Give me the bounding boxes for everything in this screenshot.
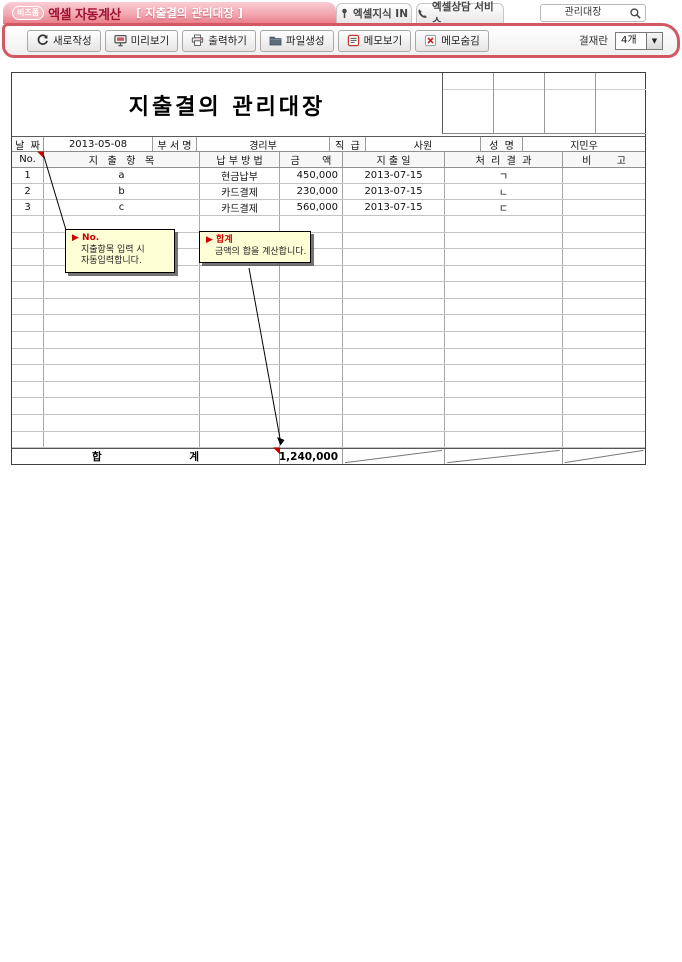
empty-cell[interactable] <box>563 415 645 431</box>
empty-cell[interactable] <box>343 216 445 232</box>
col-header-no: No. <box>12 152 44 167</box>
printer-icon <box>191 34 204 47</box>
header-bar: 비즈폼 엑셀 자동계산 [ 지출결의 관리대장 ] <box>3 2 336 24</box>
empty-cell[interactable] <box>343 299 445 315</box>
empty-cell[interactable] <box>343 398 445 414</box>
tab-label: 엑셀지식 IN <box>353 6 408 21</box>
empty-cell[interactable] <box>563 332 645 348</box>
empty-cell[interactable] <box>12 432 44 448</box>
button-label: 새로작성 <box>53 33 92 48</box>
empty-cell[interactable] <box>200 299 280 315</box>
empty-cell[interactable] <box>44 332 200 348</box>
print-button[interactable]: 출력하기 <box>182 30 256 52</box>
empty-row <box>12 398 645 415</box>
empty-cell[interactable] <box>200 398 280 414</box>
approval-columns-value: 4개 <box>616 33 646 49</box>
empty-row <box>12 415 645 432</box>
empty-cell[interactable] <box>12 282 44 298</box>
empty-cell[interactable] <box>44 398 200 414</box>
folder-icon <box>269 34 282 47</box>
cell-result[interactable]: ㄷ <box>445 200 563 215</box>
empty-cell[interactable] <box>563 432 645 448</box>
approval-col <box>494 73 545 133</box>
empty-cell[interactable] <box>200 282 280 298</box>
cell-date[interactable]: 2013-07-15 <box>343 200 445 215</box>
pin-icon <box>340 8 349 19</box>
approval-label-cell <box>545 73 595 90</box>
empty-cell[interactable] <box>343 233 445 249</box>
empty-cell[interactable] <box>445 249 563 265</box>
empty-cell[interactable] <box>445 332 563 348</box>
total-diagonal-cell <box>563 449 645 464</box>
empty-cell[interactable] <box>44 432 200 448</box>
cell-note[interactable] <box>563 200 645 215</box>
search-input[interactable]: 관리대장 <box>541 5 625 21</box>
empty-cell[interactable] <box>200 315 280 331</box>
cell-result[interactable]: ㄴ <box>445 184 563 199</box>
cell-amount[interactable]: 560,000 <box>280 200 343 215</box>
cell-no: 2 <box>12 184 44 199</box>
empty-cell[interactable] <box>280 365 343 381</box>
empty-cell[interactable] <box>44 349 200 365</box>
name-label: 성 명 <box>481 137 523 151</box>
title-area: 지출결의 관리대장 <box>12 73 442 136</box>
empty-cell[interactable] <box>445 266 563 282</box>
date-label: 날 짜 <box>12 137 44 151</box>
empty-cell[interactable] <box>445 349 563 365</box>
col-header-method: 납 부 방 법 <box>200 152 280 167</box>
col-header-result: 처 리 결 과 <box>445 152 563 167</box>
cell-result[interactable]: ㄱ <box>445 168 563 183</box>
empty-cell[interactable] <box>563 299 645 315</box>
app-window: 비즈폼 엑셀 자동계산 [ 지출결의 관리대장 ] 엑셀지식 IN 엑셀상담 서… <box>0 0 682 962</box>
empty-cell[interactable] <box>12 315 44 331</box>
cell-method[interactable]: 현금납부 <box>200 168 280 183</box>
empty-cell[interactable] <box>445 365 563 381</box>
empty-cell[interactable] <box>280 382 343 398</box>
button-label: 메모숨김 <box>441 33 480 48</box>
app-logo-title: 엑셀 자동계산 <box>48 4 121 23</box>
empty-row <box>12 382 645 399</box>
empty-cell[interactable] <box>280 266 343 282</box>
empty-cell[interactable] <box>563 349 645 365</box>
current-document-tag: [ 지출결의 관리대장 ] <box>136 5 243 21</box>
cell-note[interactable] <box>563 168 645 183</box>
toolbar: 새로작성 미리보기 출력하기 파일생성 메모보기 <box>2 23 680 58</box>
empty-cell[interactable] <box>445 315 563 331</box>
empty-cell[interactable] <box>200 349 280 365</box>
rank-value[interactable]: 사원 <box>366 137 481 151</box>
memo-text: 자동입력합니다. <box>72 256 169 268</box>
empty-row <box>12 349 645 366</box>
cell-method[interactable]: 카드결제 <box>200 200 280 215</box>
button-label: 파일생성 <box>286 33 325 48</box>
diagonal-line <box>445 449 562 464</box>
hide-memo-button[interactable]: 메모숨김 <box>415 30 489 52</box>
department-value[interactable]: 경리부 <box>197 137 330 151</box>
col-header-date: 지 출 일 <box>343 152 445 167</box>
empty-cell[interactable] <box>445 233 563 249</box>
button-label: 메모보기 <box>364 33 403 48</box>
preview-button[interactable]: 미리보기 <box>105 30 179 52</box>
memo-icon <box>347 34 360 47</box>
col-header-amount: 금 액 <box>280 152 343 167</box>
cell-note[interactable] <box>563 184 645 199</box>
empty-cell[interactable] <box>563 216 645 232</box>
diagonal-line <box>343 449 444 464</box>
cell-amount[interactable]: 450,000 <box>280 168 343 183</box>
empty-row <box>12 432 645 449</box>
button-label: 미리보기 <box>131 33 170 48</box>
empty-row <box>12 282 645 299</box>
memo-title: ▶ 합계 <box>206 235 305 247</box>
cell-item[interactable]: a <box>44 168 200 183</box>
empty-cell[interactable] <box>563 233 645 249</box>
empty-cell[interactable] <box>280 349 343 365</box>
cell-amount[interactable]: 230,000 <box>280 184 343 199</box>
table-row: 2 b 카드결제 230,000 2013-07-15 ㄴ <box>12 184 645 200</box>
empty-cell[interactable] <box>200 415 280 431</box>
total-row: 합 계 1,240,000 <box>12 448 645 464</box>
column-header-row: No. 지 출 항 목 납 부 방 법 금 액 지 출 일 처 리 결 과 비 … <box>12 152 645 168</box>
empty-cell[interactable] <box>44 282 200 298</box>
empty-cell[interactable] <box>445 299 563 315</box>
cell-item[interactable]: b <box>44 184 200 199</box>
approval-label-cell <box>596 73 646 90</box>
empty-cell[interactable] <box>563 315 645 331</box>
empty-cell[interactable] <box>280 299 343 315</box>
table-row: 1 a 현금납부 450,000 2013-07-15 ㄱ <box>12 168 645 184</box>
empty-cell[interactable] <box>343 332 445 348</box>
logo-badge: 비즈폼 <box>12 6 44 20</box>
empty-cell[interactable] <box>280 398 343 414</box>
page-title: 지출결의 관리대장 <box>129 89 326 121</box>
data-rows: 1 a 현금납부 450,000 2013-07-15 ㄱ 2 b 카드결제 2… <box>12 168 645 448</box>
empty-cell[interactable] <box>280 282 343 298</box>
empty-cell[interactable] <box>343 432 445 448</box>
empty-cell[interactable] <box>44 415 200 431</box>
empty-cell[interactable] <box>12 398 44 414</box>
memo-text: 지출항목 입력 시 <box>72 245 169 257</box>
empty-cell[interactable] <box>200 266 280 282</box>
empty-cell[interactable] <box>445 216 563 232</box>
cell-method[interactable]: 카드결제 <box>200 184 280 199</box>
button-label: 출력하기 <box>208 33 247 48</box>
show-memo-button[interactable]: 메모보기 <box>338 30 412 52</box>
approval-label-cell <box>443 73 493 90</box>
empty-cell[interactable] <box>200 432 280 448</box>
approval-grid <box>442 73 646 134</box>
cell-date[interactable]: 2013-07-15 <box>343 168 445 183</box>
empty-cell[interactable] <box>563 282 645 298</box>
empty-cell[interactable] <box>280 315 343 331</box>
empty-cell[interactable] <box>563 266 645 282</box>
empty-cell[interactable] <box>343 382 445 398</box>
empty-cell[interactable] <box>563 382 645 398</box>
empty-cell[interactable] <box>445 398 563 414</box>
empty-cell[interactable] <box>343 266 445 282</box>
empty-row <box>12 315 645 332</box>
empty-cell[interactable] <box>12 266 44 282</box>
diagonal-line <box>563 449 645 464</box>
total-label-cell: 합 계 <box>12 449 280 464</box>
refresh-icon <box>36 34 49 47</box>
empty-cell[interactable] <box>563 365 645 381</box>
cell-item[interactable]: c <box>44 200 200 215</box>
total-amount-cell: 1,240,000 <box>280 449 343 464</box>
memo-note-no[interactable]: ▶ No. 지출항목 입력 시 자동입력합니다. <box>65 229 175 273</box>
memo-title: ▶ No. <box>72 233 169 245</box>
approval-columns-select[interactable]: 4개 ▼ <box>615 32 663 50</box>
empty-cell[interactable] <box>12 415 44 431</box>
empty-cell[interactable] <box>12 249 44 265</box>
approval-sign-cell <box>443 90 493 133</box>
empty-cell[interactable] <box>12 299 44 315</box>
tab-excel-knowledge[interactable]: 엑셀지식 IN <box>336 3 412 23</box>
search-icon[interactable] <box>625 5 645 21</box>
empty-cell[interactable] <box>280 432 343 448</box>
rank-label: 직 급 <box>330 137 366 151</box>
col-header-note: 비 고 <box>563 152 645 167</box>
phone-icon <box>417 8 428 19</box>
memo-note-total[interactable]: ▶ 합계 금액의 합을 계산합니다. <box>199 231 311 263</box>
memo-text: 금액의 합을 계산합니다. <box>206 247 305 259</box>
create-file-button[interactable]: 파일생성 <box>260 30 334 52</box>
chevron-down-icon[interactable]: ▼ <box>646 33 662 49</box>
total-diagonal-cell <box>445 449 563 464</box>
empty-cell[interactable] <box>343 282 445 298</box>
cell-date[interactable]: 2013-07-15 <box>343 184 445 199</box>
empty-cell[interactable] <box>12 365 44 381</box>
department-label: 부 서 명 <box>153 137 197 151</box>
empty-row <box>12 332 645 349</box>
empty-cell[interactable] <box>343 349 445 365</box>
approval-columns-label: 결재란 <box>579 33 608 48</box>
table-row: 3 c 카드결제 560,000 2013-07-15 ㄷ <box>12 200 645 216</box>
empty-cell[interactable] <box>200 365 280 381</box>
empty-cell[interactable] <box>343 365 445 381</box>
empty-cell[interactable] <box>445 415 563 431</box>
approval-col <box>443 73 494 133</box>
empty-cell[interactable] <box>280 415 343 431</box>
approval-col <box>545 73 596 133</box>
empty-cell[interactable] <box>563 249 645 265</box>
empty-cell[interactable] <box>343 315 445 331</box>
cell-no: 3 <box>12 200 44 215</box>
cell-no: 1 <box>12 168 44 183</box>
empty-cell[interactable] <box>12 233 44 249</box>
new-document-button[interactable]: 새로작성 <box>27 30 101 52</box>
memo-hide-icon <box>424 34 437 47</box>
col-header-item: 지 출 항 목 <box>44 152 200 167</box>
empty-cell[interactable] <box>200 382 280 398</box>
tab-excel-consult[interactable]: 엑셀상담 서비스 <box>416 3 504 23</box>
monitor-icon <box>114 34 127 47</box>
empty-cell[interactable] <box>200 216 280 232</box>
approval-sign-cell <box>545 90 595 133</box>
search-box: 관리대장 <box>540 4 646 22</box>
empty-cell[interactable] <box>445 382 563 398</box>
empty-row <box>12 365 645 382</box>
empty-cell[interactable] <box>445 432 563 448</box>
empty-cell[interactable] <box>44 365 200 381</box>
empty-cell[interactable] <box>563 398 645 414</box>
approval-columns-control: 결재란 4개 ▼ <box>579 32 663 50</box>
empty-cell[interactable] <box>200 332 280 348</box>
name-value[interactable]: 지민우 <box>523 137 645 151</box>
empty-cell[interactable] <box>280 332 343 348</box>
empty-cell[interactable] <box>12 216 44 232</box>
info-row: 날 짜 2013-05-08 부 서 명 경리부 직 급 사원 성 명 지민우 <box>12 136 645 152</box>
empty-cell[interactable] <box>44 299 200 315</box>
empty-cell[interactable] <box>445 282 563 298</box>
empty-row <box>12 299 645 316</box>
date-value[interactable]: 2013-05-08 <box>44 137 153 151</box>
approval-col <box>596 73 646 133</box>
approval-label-cell <box>494 73 544 90</box>
empty-cell[interactable] <box>343 415 445 431</box>
empty-cell[interactable] <box>343 249 445 265</box>
empty-cell[interactable] <box>12 332 44 348</box>
empty-cell[interactable] <box>12 382 44 398</box>
empty-cell[interactable] <box>44 315 200 331</box>
total-diagonal-cell <box>343 449 445 464</box>
approval-sign-cell <box>596 90 646 133</box>
empty-cell[interactable] <box>280 216 343 232</box>
approval-sign-cell <box>494 90 544 133</box>
empty-cell[interactable] <box>44 382 200 398</box>
empty-cell[interactable] <box>12 349 44 365</box>
